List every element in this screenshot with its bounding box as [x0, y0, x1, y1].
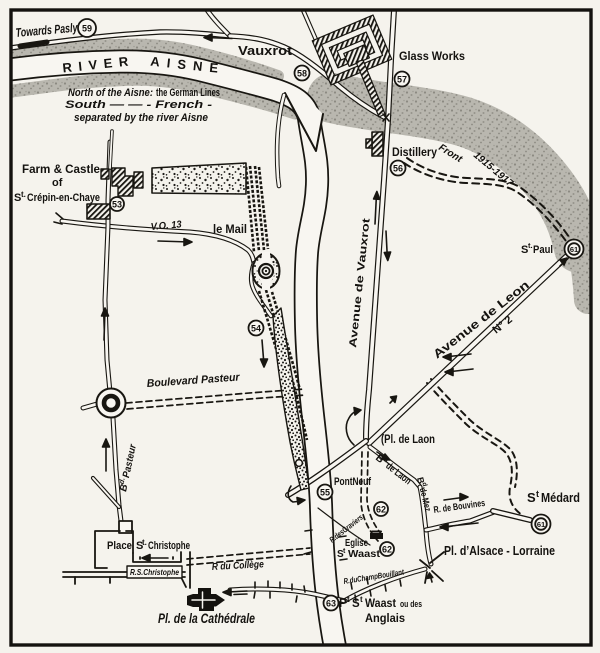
svg-text:58: 58: [297, 69, 307, 79]
svg-text:the German Lines: the German Lines: [156, 87, 220, 99]
svg-text:t: t: [536, 489, 539, 499]
svg-text:le Mail: le Mail: [213, 222, 247, 236]
svg-text:P: P: [339, 598, 347, 610]
svg-text:59: 59: [82, 24, 92, 34]
svg-text:separated by the river Ais: separated by the river Aisne: [74, 112, 208, 124]
svg-text:62: 62: [376, 505, 386, 515]
svg-text:63: 63: [326, 599, 336, 609]
svg-text:Waast: Waast: [348, 549, 381, 560]
svg-text:56: 56: [393, 164, 403, 174]
svg-text:Farm & Castle: Farm & Castle: [22, 162, 100, 176]
svg-text:t.: t.: [142, 538, 147, 547]
svg-text:(Pl. de Laon: (Pl. de Laon: [381, 432, 435, 446]
svg-text:t.: t.: [528, 241, 533, 250]
svg-text:ou des: ou des: [400, 599, 422, 609]
svg-text:Anglais: Anglais: [365, 613, 405, 625]
svg-text:t: t: [347, 595, 350, 604]
svg-text:S: S: [527, 490, 536, 505]
svg-text:Pl. d’Alsace - Lorraine: Pl. d’Alsace - Lorraine: [444, 544, 555, 558]
svg-text:of: of: [52, 177, 63, 189]
svg-text:55: 55: [320, 488, 330, 498]
svg-text:Vauxrot: Vauxrot: [238, 43, 293, 58]
svg-text:South — — - French -: South — — - French -: [65, 99, 212, 111]
svg-text:Paul: Paul: [533, 244, 553, 256]
svg-text:54: 54: [251, 324, 261, 334]
svg-text:Distillery: Distillery: [392, 145, 437, 159]
svg-text:Eglise: Eglise: [345, 538, 368, 549]
svg-text:Waast: Waast: [365, 598, 396, 610]
svg-text:Glass Works: Glass Works: [399, 49, 465, 63]
svg-text:57: 57: [397, 75, 407, 85]
svg-text:62: 62: [382, 545, 392, 555]
svg-text:R.S.Christophe: R.S.Christophe: [130, 567, 179, 577]
svg-text:53: 53: [112, 200, 122, 210]
svg-text:S: S: [352, 598, 360, 610]
svg-text:North of the Aisne:: North of the Aisne:: [68, 87, 153, 99]
svg-text:61: 61: [537, 520, 545, 529]
svg-text:Crépin-en-Chaye: Crépin-en-Chaye: [27, 192, 100, 204]
svg-text:t: t: [360, 595, 363, 604]
svg-text:t.: t.: [21, 190, 26, 199]
svg-text:Pl. de la Cathédrale: Pl. de la Cathédrale: [158, 611, 255, 626]
svg-text:Médard: Médard: [541, 490, 580, 505]
svg-text:Place: Place: [107, 540, 132, 552]
svg-text:61: 61: [570, 245, 578, 254]
svg-text:PontNeuf: PontNeuf: [334, 476, 371, 488]
svg-text:Christophe: Christophe: [148, 540, 190, 552]
